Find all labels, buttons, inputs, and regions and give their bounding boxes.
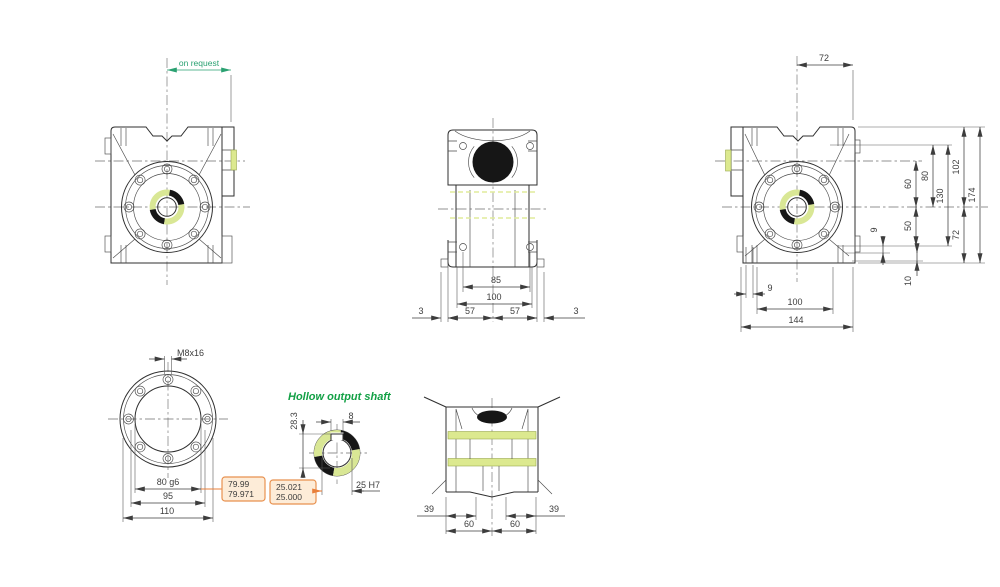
dim-9-foot: 9	[767, 283, 772, 293]
dim-on-request: on request	[179, 58, 220, 68]
dim-10: 10	[903, 276, 913, 286]
dim-72-top: 72	[819, 53, 829, 63]
tol-25-upper: 25.021	[276, 482, 302, 492]
tol-25-lower: 25.000	[276, 492, 302, 502]
top-view: 85 100 3 57 57 3	[412, 118, 585, 322]
dim-80: 80	[920, 171, 930, 181]
front-view: on request	[95, 58, 250, 285]
dim-8: 8	[348, 411, 353, 421]
dim-110: 110	[160, 506, 174, 516]
technical-drawing-page: on request 85 100 3 57 57	[0, 0, 1000, 587]
dim-57-right: 57	[510, 306, 520, 316]
dim-39-left: 39	[424, 504, 434, 514]
input-bore-filled	[473, 142, 514, 183]
hollow-shaft-detail: Hollow output shaft 8 28.3 25 H7 79.99 7…	[201, 391, 392, 504]
bottom-view: 39 39 60 60	[417, 397, 565, 536]
flange-view: M8x16 80 g6 95 110	[108, 348, 228, 522]
dim-100-bottom: 100	[787, 297, 802, 307]
hollow-bore-strip-top	[448, 432, 536, 440]
dim-174: 174	[967, 187, 977, 202]
dim-39-right: 39	[549, 504, 559, 514]
dim-25h7: 25 H7	[356, 480, 380, 490]
dim-130: 130	[935, 188, 945, 203]
dim-95: 95	[163, 491, 173, 501]
dim-60: 60	[903, 179, 913, 189]
hollow-bore-strip-bottom	[448, 459, 536, 467]
dim-50: 50	[903, 221, 913, 231]
dim-80g6: 80 g6	[157, 477, 180, 487]
tol-80-lower: 79.971	[228, 489, 254, 499]
dim-72-right: 72	[951, 230, 961, 240]
tol-80-upper: 79.99	[228, 479, 250, 489]
dim-28-3: 28.3	[289, 412, 299, 430]
dim-57-left: 57	[465, 306, 475, 316]
drawing-canvas: on request 85 100 3 57 57	[0, 0, 1000, 587]
input-shaft-highlight-2	[726, 150, 732, 171]
dim-100: 100	[486, 292, 501, 302]
dim-3-right: 3	[573, 306, 578, 316]
dim-3-left: 3	[418, 306, 423, 316]
dim-102: 102	[951, 159, 961, 174]
worm-shaft-end	[477, 411, 507, 424]
dim-60-right: 60	[510, 519, 520, 529]
side-view: 72 60 50 80 130 102 72 174 9 10 9 100 14…	[715, 53, 988, 332]
dim-144: 144	[788, 315, 803, 325]
dim-85: 85	[491, 275, 501, 285]
detail-title: Hollow output shaft	[288, 391, 392, 403]
dim-9-step: 9	[869, 227, 879, 232]
dim-60-left: 60	[464, 519, 474, 529]
dim-thread: M8x16	[177, 348, 204, 358]
input-shaft-highlight	[231, 150, 237, 170]
